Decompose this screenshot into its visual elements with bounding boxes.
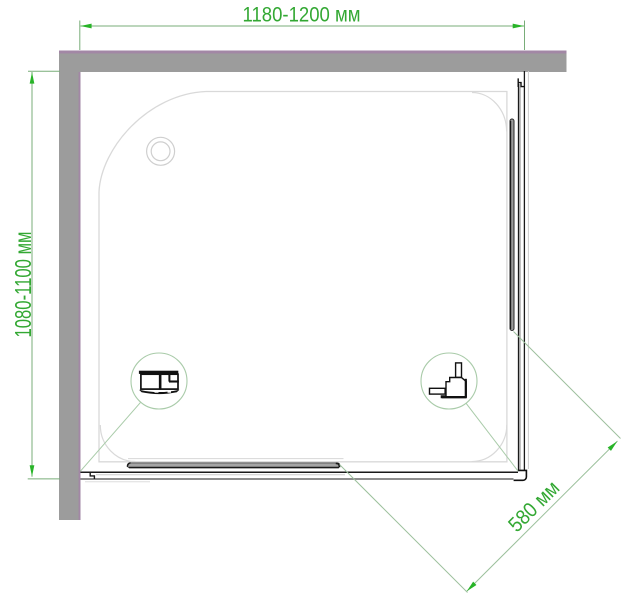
svg-text:580 мм: 580 мм [504,477,564,537]
svg-text:1080-1100 мм: 1080-1100 мм [10,232,36,338]
svg-text:1180-1200 мм: 1180-1200 мм [243,3,361,27]
